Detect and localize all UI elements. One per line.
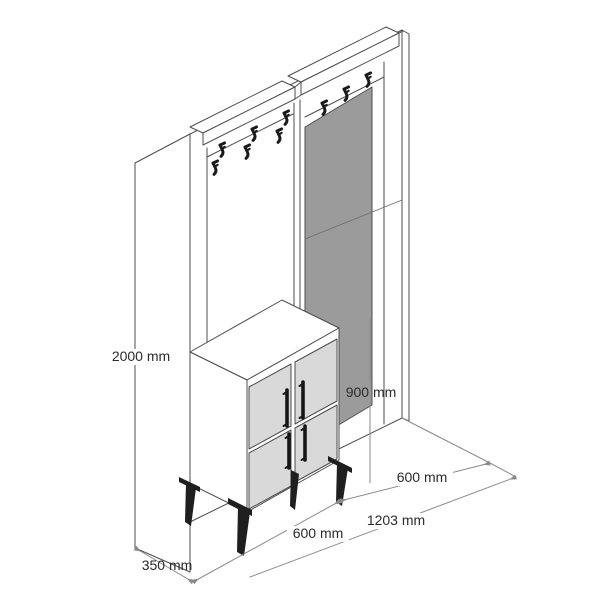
dim-label-mirror-section-width: 600 mm	[397, 469, 448, 485]
furniture-dimension-diagram: 2000 mm 900 mm 350 mm 600 mm 600 mm 1203…	[0, 0, 604, 604]
dim-label-cabinet-width: 600 mm	[293, 525, 344, 541]
arrowhead-icon	[192, 576, 201, 584]
dim-extension-right	[402, 418, 490, 463]
dim-label-total-width: 1203 mm	[367, 512, 425, 528]
cabinet-leg	[290, 470, 299, 510]
dim-label-total-height: 2000 mm	[112, 348, 170, 364]
technical-drawing-page: 2000 mm 900 mm 350 mm 600 mm 600 mm 1203…	[0, 0, 604, 604]
dim-label-depth: 350 mm	[142, 557, 193, 573]
dim-extension-corner	[490, 463, 516, 477]
dim-label-cabinet-height: 900 mm	[346, 384, 397, 400]
right-column-side	[402, 30, 409, 421]
